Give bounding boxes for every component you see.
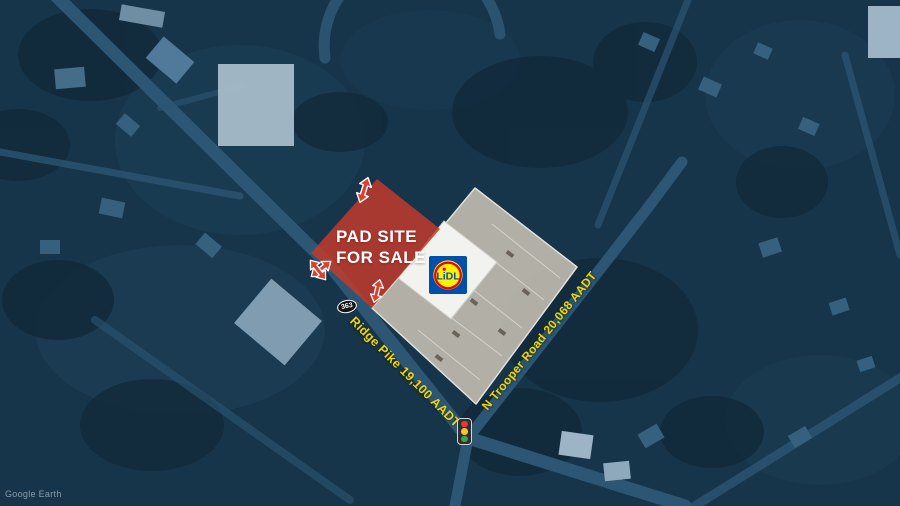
traffic-light-red — [461, 421, 468, 428]
lidl-logo-icon: LiDL — [429, 256, 467, 294]
lidl-logo-text: LiDL — [436, 270, 460, 282]
traffic-light-icon — [457, 418, 472, 445]
traffic-light-green — [461, 436, 468, 443]
pad-site-label: PAD SITE FOR SALE — [336, 226, 426, 268]
aerial-map: PAD SITE FOR SALE Ridge Pike 19,100 AADT… — [0, 0, 900, 506]
pad-site-label-line1: PAD SITE — [336, 226, 426, 247]
lidl-i-dot — [443, 268, 446, 271]
traffic-light-yellow — [461, 428, 468, 435]
pad-site-label-line2: FOR SALE — [336, 247, 426, 268]
aerial-basemap — [0, 0, 900, 506]
google-earth-attribution: Google Earth — [5, 489, 62, 499]
